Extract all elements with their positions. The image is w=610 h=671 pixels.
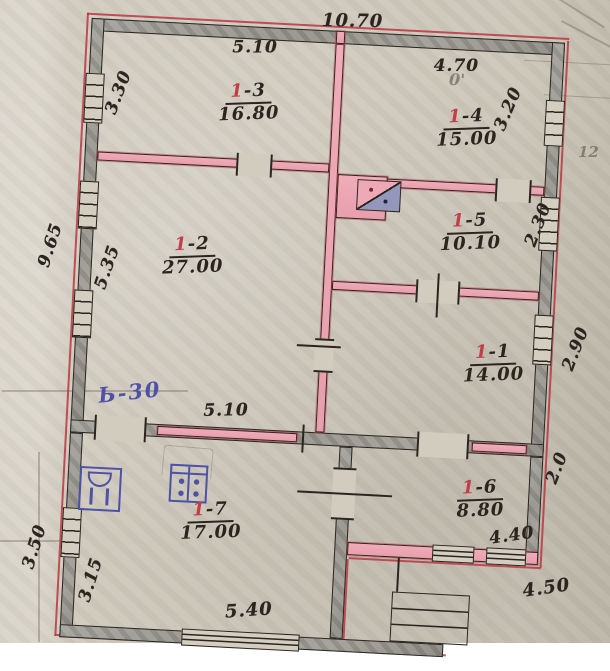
wall-top-pink-junction [336,31,346,44]
pencil-zero-mark: 0' [448,70,465,90]
window-room16-bottom-2 [486,547,527,566]
room-label-1-7: 1-7 17.00 [177,499,244,545]
room-label-1-4: 1-4 15.00 [433,106,500,152]
window-left-3 [72,289,93,338]
dim-left-mid: 5.35 [91,242,125,291]
dim-veranda-left-inner: 3.15 [75,555,107,604]
room-label-1-1: 1-1 14.00 [459,341,526,387]
floor-plan: 10.70 5.10 4.70 3.30 9.65 5.35 3.20 2.30… [41,12,573,669]
window-room16-bottom-1 [432,544,475,563]
washbasin-leg [105,488,108,505]
window-left-2 [78,181,99,230]
partition-room13-room12 [97,151,329,172]
pencil-number-note: 12 [578,143,599,161]
door-room14-room15 [495,178,532,203]
erased-fixture-sketch [161,444,214,479]
washbasin-leg [89,487,92,504]
window-right-3 [532,315,554,366]
window-veranda-bottom [181,628,300,651]
door-room13-room12 [236,153,273,178]
window-left-veranda [60,507,82,558]
door-room12-room17 [94,415,147,443]
washbasin-bowl [87,471,112,487]
dim-veranda-bottom: 5.40 [224,598,273,622]
dim-inner-bottom: 5.10 [203,400,249,421]
door-room12-room11 [313,338,334,373]
dim-room13-width: 5.10 [232,38,277,58]
porch-connector-line [396,558,400,592]
partition-vertical-main [315,44,344,433]
dim-left-upper: 3.30 [101,68,136,118]
room-label-1-3: 1-3 16.80 [215,80,282,126]
porch-steps [389,591,470,645]
dim-overall-top: 10.70 [322,10,384,32]
blue-ink-note: Ь-30 [97,376,163,407]
room-label-1-5: 1-5 10.10 [436,210,503,256]
washbasin-fixture [78,466,122,512]
room-label-1-6: 1-6 8.80 [446,477,513,523]
window-left-1 [83,73,105,124]
room-label-1-2: 1-2 27.00 [159,233,226,279]
window-right-1 [544,100,565,147]
door-room11-room16 [416,432,469,460]
furnace-symbol [356,179,402,212]
